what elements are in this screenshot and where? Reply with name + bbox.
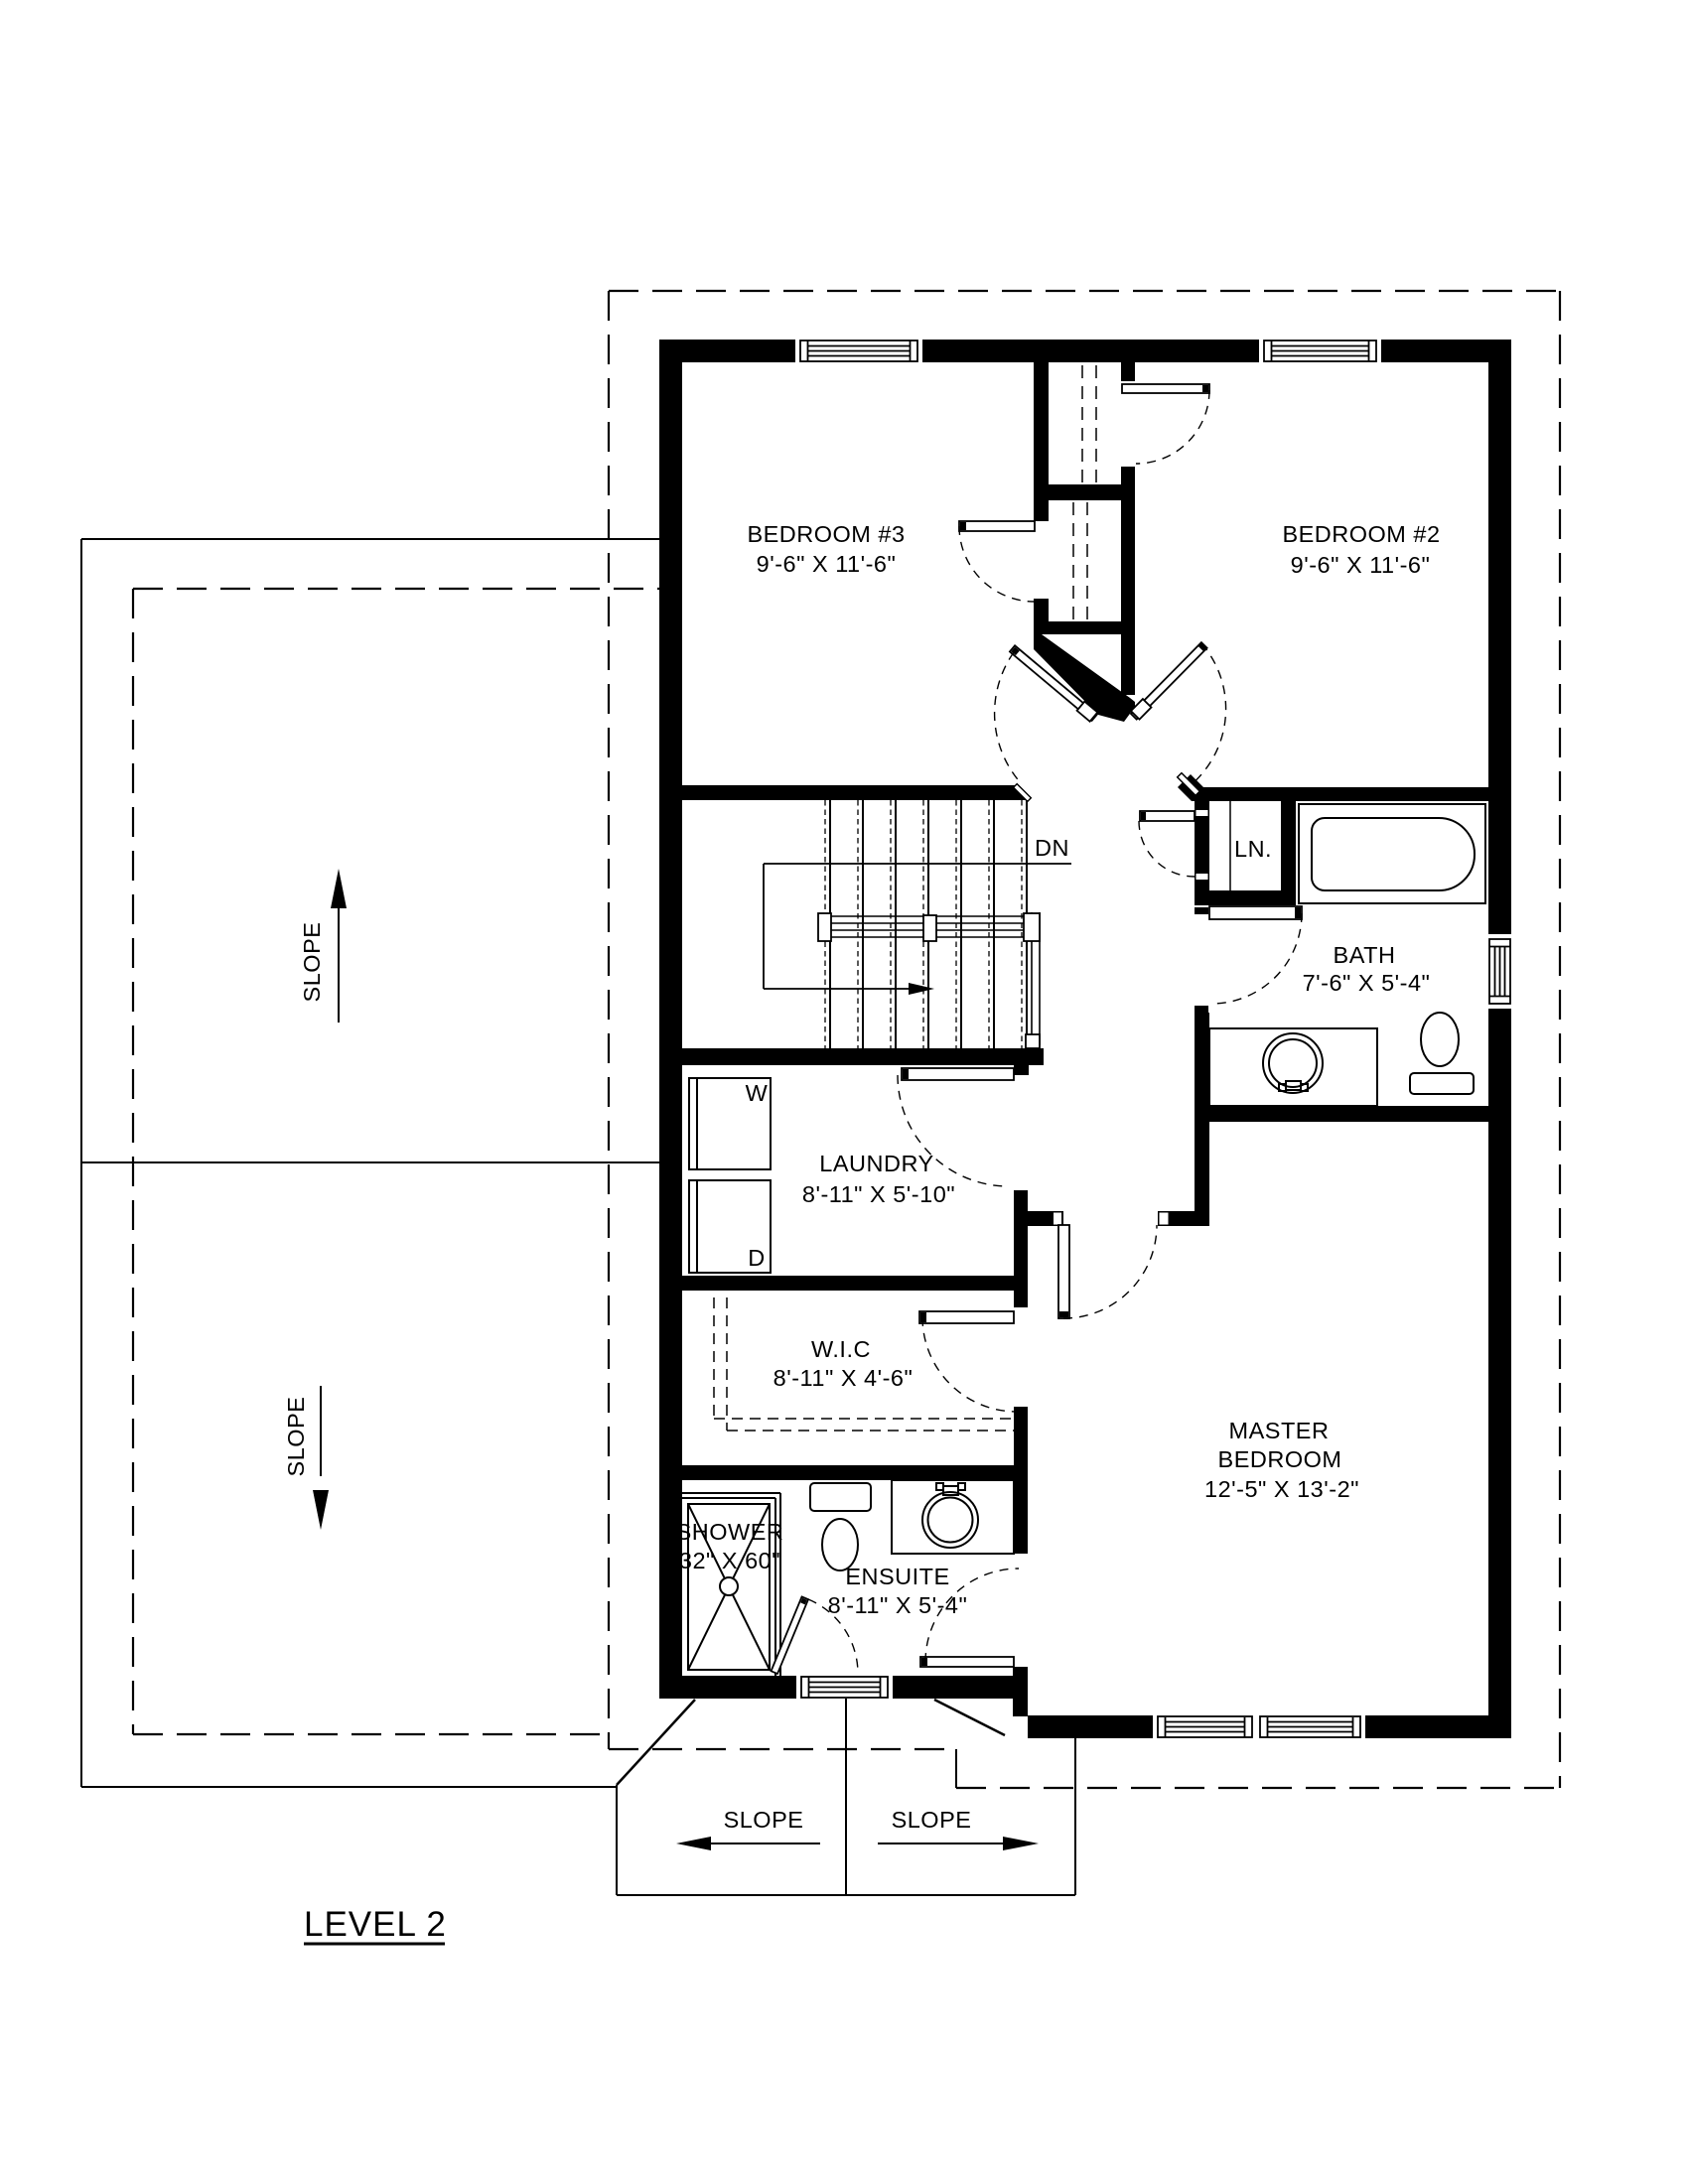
svg-text:8'-11" X 4'-6": 8'-11" X 4'-6" xyxy=(774,1365,914,1391)
svg-text:MASTER: MASTER xyxy=(1229,1418,1330,1443)
svg-text:9'-6" X 11'-6": 9'-6" X 11'-6" xyxy=(757,551,897,577)
svg-text:BEDROOM: BEDROOM xyxy=(1218,1446,1342,1472)
svg-text:9'-6" X 11'-6": 9'-6" X 11'-6" xyxy=(1291,552,1431,578)
svg-text:DN: DN xyxy=(1035,835,1069,861)
svg-text:8'-11" X 5'-4": 8'-11" X 5'-4" xyxy=(828,1592,968,1618)
svg-text:LAUNDRY: LAUNDRY xyxy=(819,1151,933,1176)
svg-text:SLOPE: SLOPE xyxy=(724,1807,804,1833)
svg-text:W.I.C: W.I.C xyxy=(811,1336,871,1362)
svg-text:W: W xyxy=(746,1080,769,1106)
svg-text:D: D xyxy=(748,1245,765,1271)
svg-text:7'-6" X 5'-4": 7'-6" X 5'-4" xyxy=(1303,970,1431,996)
svg-text:12'-5" X 13'-2": 12'-5" X 13'-2" xyxy=(1204,1476,1359,1502)
svg-text:32" X 60": 32" X 60" xyxy=(679,1548,780,1573)
svg-text:SLOPE: SLOPE xyxy=(892,1807,972,1833)
svg-text:8'-11" X 5'-10": 8'-11" X 5'-10" xyxy=(802,1181,955,1207)
svg-text:SLOPE: SLOPE xyxy=(283,1397,309,1477)
svg-text:LN.: LN. xyxy=(1234,836,1272,862)
svg-text:BEDROOM #3: BEDROOM #3 xyxy=(747,521,905,547)
svg-text:BEDROOM #2: BEDROOM #2 xyxy=(1282,521,1440,547)
svg-text:ENSUITE: ENSUITE xyxy=(845,1564,949,1589)
svg-text:BATH: BATH xyxy=(1334,942,1396,968)
svg-text:LEVEL 2: LEVEL 2 xyxy=(304,1905,447,1944)
svg-text:SLOPE: SLOPE xyxy=(299,922,325,1003)
svg-text:SHOWER: SHOWER xyxy=(676,1519,784,1545)
